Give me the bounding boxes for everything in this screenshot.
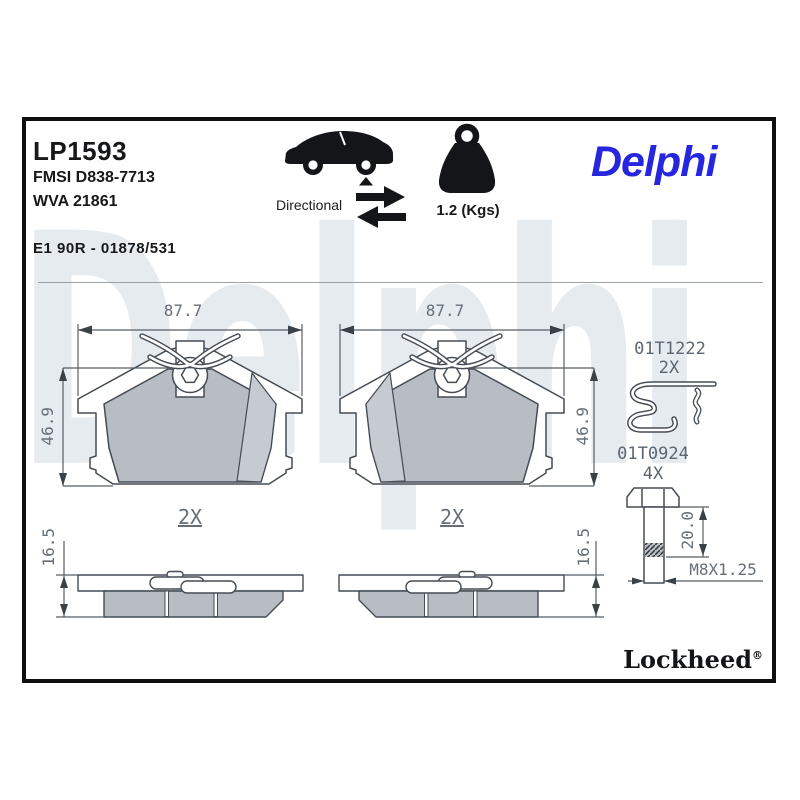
car-rear-axle-icon bbox=[282, 123, 397, 187]
accessory-bolt-part-number: 01T0924 bbox=[593, 445, 713, 465]
pad-front-view-mirrored bbox=[340, 336, 564, 484]
pad-groove bbox=[214, 591, 218, 617]
qty-left-view: 2X bbox=[160, 506, 220, 529]
directional-arrows-icon bbox=[356, 185, 406, 229]
accessory-clip-qty: 2X bbox=[609, 359, 729, 379]
wva-code: WVA 21861 bbox=[33, 193, 117, 211]
accessory-clip-part-number: 01T1222 bbox=[610, 340, 730, 360]
bolt-thread-band bbox=[645, 543, 663, 557]
dim-thickness-left: 16.5 bbox=[40, 517, 58, 577]
header-separator bbox=[38, 282, 763, 283]
boss-hole bbox=[182, 368, 199, 383]
datasheet-page: Delphi LP1593 FMSI D838-7713 WVA 21861 E… bbox=[0, 0, 800, 800]
part-number: LP1593 bbox=[33, 136, 127, 167]
friction-material-side bbox=[104, 591, 283, 617]
accessory-bolt-qty: 4X bbox=[593, 465, 713, 485]
approval-code: E1 90R - 01878/531 bbox=[33, 240, 176, 257]
lockheed-logo: Lockheed® bbox=[526, 645, 763, 674]
delphi-logo: Delphi bbox=[591, 141, 716, 184]
pad-front-view bbox=[78, 336, 302, 484]
dim-bolt-length: 20.0 bbox=[679, 500, 697, 560]
fmsi-code: FMSI D838-7713 bbox=[33, 169, 155, 187]
weight-value: 1.2 (Kgs) bbox=[422, 202, 514, 219]
bolt-head bbox=[627, 488, 679, 507]
pad-groove bbox=[165, 591, 169, 617]
dim-height-left: 46.9 bbox=[39, 396, 57, 456]
registered-mark: ® bbox=[752, 649, 763, 662]
pad-side-view-mirrored bbox=[339, 572, 564, 618]
dim-width-left: 87.7 bbox=[153, 302, 213, 320]
content-frame: Delphi LP1593 FMSI D838-7713 WVA 21861 E… bbox=[22, 117, 776, 683]
dim-thickness-right: 16.5 bbox=[575, 517, 593, 577]
dim-height-right: 46.9 bbox=[574, 396, 592, 456]
directional-label: Directional bbox=[276, 197, 342, 213]
dim-width-right: 87.7 bbox=[415, 302, 475, 320]
dim-bolt-thread: M8X1.25 bbox=[663, 561, 776, 579]
lockheed-wordmark: Lockheed bbox=[623, 645, 752, 674]
spring-clip-drawing bbox=[630, 384, 714, 430]
pad-side-view bbox=[78, 572, 303, 618]
weight-kettlebell-icon bbox=[430, 123, 504, 199]
qty-right-view: 2X bbox=[422, 506, 482, 529]
